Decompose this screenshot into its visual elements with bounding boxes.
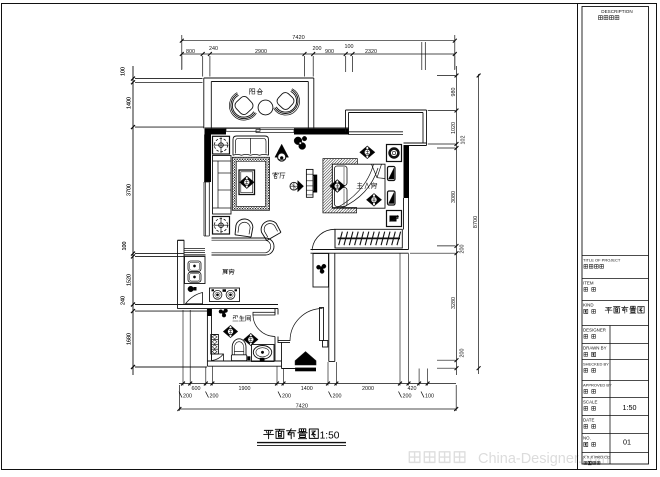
- svg-text:100: 100: [425, 393, 434, 399]
- svg-text:APPROVED BY: APPROVED BY: [583, 383, 612, 388]
- svg-text:KIND: KIND: [583, 303, 594, 308]
- svg-text:2000: 2000: [362, 386, 374, 392]
- svg-text:200: 200: [333, 393, 342, 399]
- svg-text:3700: 3700: [127, 184, 133, 196]
- svg-text:3080: 3080: [451, 191, 457, 203]
- svg-text:200: 200: [282, 393, 291, 399]
- svg-text:200: 200: [210, 393, 219, 399]
- svg-text:SHECKED BY: SHECKED BY: [583, 362, 609, 367]
- svg-text:1680: 1680: [127, 333, 133, 345]
- svg-text:DATE: DATE: [583, 418, 594, 423]
- svg-text:100: 100: [345, 44, 354, 50]
- svg-text:TITLE OF PROJECT: TITLE OF PROJECT: [583, 258, 621, 263]
- svg-text:1020: 1020: [451, 122, 457, 134]
- svg-text:NO.: NO.: [583, 436, 591, 441]
- svg-text:200: 200: [460, 245, 466, 254]
- svg-text:1400: 1400: [301, 386, 313, 392]
- svg-text:01: 01: [623, 438, 631, 447]
- svg-text:X X X PRO CO: X X X PRO CO: [583, 455, 610, 460]
- svg-text:DRAWN BY: DRAWN BY: [583, 346, 607, 351]
- svg-text:240: 240: [121, 296, 127, 305]
- svg-text:200: 200: [460, 349, 466, 358]
- svg-text:1900: 1900: [239, 386, 251, 392]
- svg-text:1520: 1520: [127, 274, 133, 286]
- svg-text:2320: 2320: [365, 49, 377, 55]
- svg-text:SCALE: SCALE: [583, 400, 597, 405]
- svg-text:980: 980: [451, 88, 457, 97]
- svg-text:240: 240: [209, 46, 218, 52]
- svg-text:3280: 3280: [451, 297, 457, 309]
- svg-text:200: 200: [183, 393, 192, 399]
- svg-text:200: 200: [403, 393, 412, 399]
- svg-text:200: 200: [313, 46, 322, 52]
- svg-text:100: 100: [121, 67, 127, 76]
- svg-text:600: 600: [192, 386, 201, 392]
- svg-text:800: 800: [186, 49, 195, 55]
- svg-text:102: 102: [461, 136, 467, 145]
- svg-text:1400: 1400: [127, 97, 133, 109]
- svg-text:1:50: 1:50: [320, 430, 340, 441]
- svg-text:DESCRIPTION: DESCRIPTION: [601, 9, 632, 14]
- svg-text:1:50: 1:50: [623, 403, 637, 412]
- svg-text:8700: 8700: [473, 216, 479, 228]
- svg-text:DESIGNER: DESIGNER: [583, 328, 606, 333]
- svg-text:7420: 7420: [292, 35, 304, 41]
- svg-text:7420: 7420: [296, 404, 308, 410]
- svg-text:420: 420: [408, 386, 417, 392]
- svg-text:2900: 2900: [255, 49, 267, 55]
- svg-text:ITEM: ITEM: [583, 281, 594, 286]
- svg-text:900: 900: [325, 49, 334, 55]
- svg-text:100: 100: [122, 242, 128, 251]
